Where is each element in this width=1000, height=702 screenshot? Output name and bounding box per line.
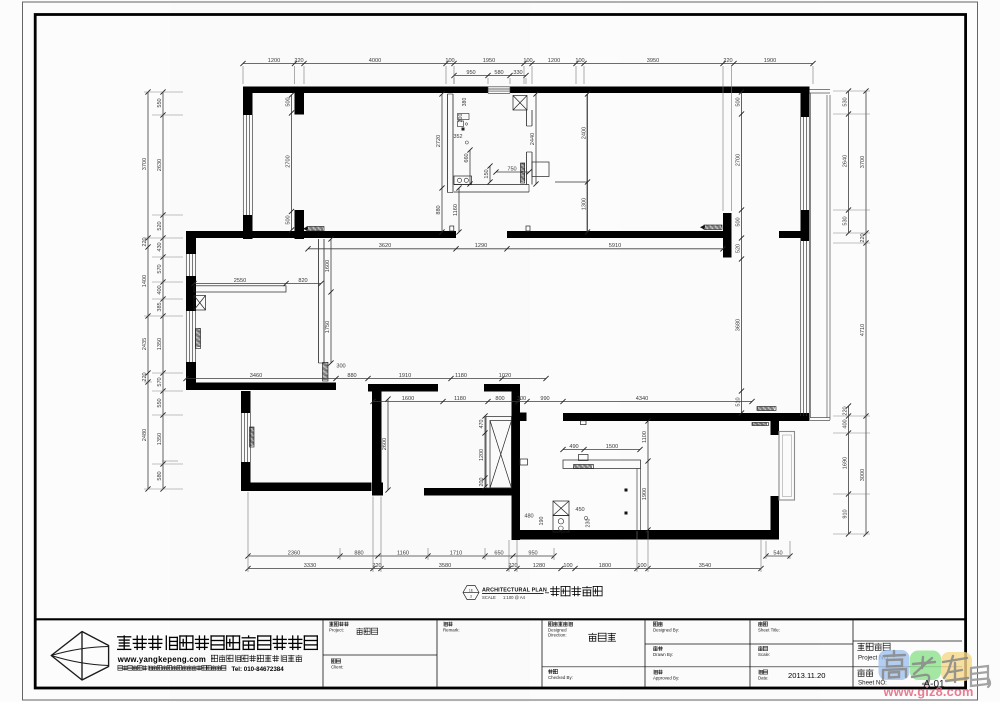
svg-text:880: 880 [354, 550, 363, 556]
svg-text:750: 750 [507, 166, 516, 172]
svg-text:Client:: Client: [331, 664, 343, 669]
svg-text:3700: 3700 [142, 158, 148, 170]
svg-text:550: 550 [157, 398, 163, 407]
svg-text:100: 100 [575, 58, 584, 64]
svg-text:2640: 2640 [843, 155, 849, 167]
svg-text:Designed By:: Designed By: [653, 627, 679, 632]
svg-text:2400: 2400 [582, 127, 588, 139]
svg-text:3330: 3330 [304, 563, 316, 569]
svg-text:800: 800 [495, 396, 504, 402]
svg-text:3540: 3540 [699, 563, 711, 569]
svg-text:3620: 3620 [379, 243, 391, 249]
svg-text:Checked By:: Checked By: [548, 675, 573, 680]
svg-text:510: 510 [736, 397, 742, 406]
svg-text:1200: 1200 [268, 58, 280, 64]
svg-text:520: 520 [736, 244, 742, 253]
svg-text:4000: 4000 [369, 58, 381, 64]
svg-text:480: 480 [524, 514, 533, 520]
svg-text:1160: 1160 [397, 550, 409, 556]
svg-text:352: 352 [454, 134, 463, 140]
svg-text:570: 570 [157, 377, 163, 386]
svg-text:4340: 4340 [636, 396, 648, 402]
svg-text:1600: 1600 [325, 260, 331, 272]
svg-text:550: 550 [157, 98, 163, 107]
svg-text:2480: 2480 [142, 429, 148, 441]
svg-text:1350: 1350 [157, 338, 163, 350]
svg-text:580: 580 [157, 471, 163, 480]
svg-text:380: 380 [462, 98, 468, 107]
svg-text:1290: 1290 [475, 243, 487, 249]
svg-text:300: 300 [517, 396, 526, 402]
svg-text:220: 220 [860, 233, 866, 242]
svg-text:470: 470 [479, 420, 485, 429]
svg-text:1910: 1910 [399, 373, 411, 379]
svg-text:1950: 1950 [483, 58, 495, 64]
svg-text:1180: 1180 [454, 396, 466, 402]
svg-text:Sheet Title:: Sheet Title: [758, 627, 780, 632]
svg-text:880: 880 [436, 205, 442, 214]
svg-text:1750: 1750 [325, 321, 331, 333]
svg-text:100: 100 [523, 58, 532, 64]
svg-text:220: 220 [142, 237, 148, 246]
svg-text:1500: 1500 [606, 444, 618, 450]
svg-text:190: 190 [539, 517, 545, 526]
svg-text:A-01: A-01 [924, 679, 946, 690]
svg-text:650: 650 [494, 550, 503, 556]
svg-text:220: 220 [723, 58, 732, 64]
svg-text:1710: 1710 [450, 550, 462, 556]
svg-text:ARCHITECTURAL PLAN: ARCHITECTURAL PLAN [482, 588, 547, 594]
svg-text:230: 230 [586, 519, 592, 528]
svg-text:220: 220 [843, 406, 849, 415]
svg-text:1:100 @ A4: 1:100 @ A4 [503, 595, 526, 600]
svg-text:3: 3 [470, 595, 472, 599]
svg-text:100: 100 [445, 58, 454, 64]
svg-text:Approved By:: Approved By: [653, 675, 679, 680]
svg-text:3580: 3580 [439, 563, 451, 569]
svg-text:1300: 1300 [582, 198, 588, 210]
svg-text:580: 580 [494, 70, 503, 76]
svg-text:220: 220 [508, 563, 517, 569]
svg-text:200: 200 [458, 114, 464, 123]
svg-text:Drawn By:: Drawn By: [653, 652, 673, 657]
svg-text:2720: 2720 [436, 135, 442, 147]
svg-text:2435: 2435 [142, 338, 148, 350]
svg-text:400: 400 [843, 419, 849, 428]
svg-text:910: 910 [843, 509, 849, 518]
svg-text:385: 385 [157, 302, 163, 311]
svg-text:3460: 3460 [250, 373, 262, 379]
svg-text:220: 220 [294, 58, 303, 64]
svg-text:1100: 1100 [642, 431, 648, 443]
svg-text:3000: 3000 [860, 469, 866, 481]
svg-text:450: 450 [575, 507, 584, 513]
svg-text:1690: 1690 [843, 457, 849, 469]
svg-text:500: 500 [286, 215, 292, 224]
svg-text:1800: 1800 [599, 563, 611, 569]
svg-text:950: 950 [466, 70, 475, 76]
svg-text:500: 500 [286, 97, 292, 106]
svg-text:500: 500 [736, 217, 742, 226]
svg-text:2700: 2700 [736, 154, 742, 166]
svg-text:3700: 3700 [860, 156, 866, 168]
svg-text:Direction:: Direction: [548, 632, 567, 637]
svg-text:330: 330 [513, 70, 522, 76]
svg-text:500: 500 [736, 97, 742, 106]
svg-text:1180: 1180 [455, 373, 467, 379]
svg-text:400: 400 [157, 285, 163, 294]
svg-text:2013.11.20: 2013.11.20 [788, 671, 825, 680]
svg-text:5910: 5910 [609, 243, 621, 249]
svg-text:530: 530 [843, 97, 849, 106]
svg-text:990: 990 [540, 396, 549, 402]
svg-text:Tel: 010-84672384: Tel: 010-84672384 [232, 666, 285, 673]
svg-text:540: 540 [773, 550, 782, 556]
svg-text:2630: 2630 [157, 159, 163, 171]
svg-text:1200: 1200 [479, 449, 485, 461]
svg-text:1160: 1160 [453, 204, 459, 216]
svg-text:570: 570 [157, 264, 163, 273]
svg-text:880: 880 [347, 373, 356, 379]
svg-text:1400: 1400 [142, 275, 148, 287]
svg-text:3950: 3950 [647, 58, 659, 64]
svg-text:2600: 2600 [382, 438, 388, 450]
svg-text:4710: 4710 [860, 324, 866, 336]
svg-text:3680: 3680 [736, 319, 742, 331]
svg-text:SCALE: SCALE [482, 595, 496, 600]
svg-text:950: 950 [528, 550, 537, 556]
svg-text:520: 520 [157, 221, 163, 230]
svg-text:430: 430 [157, 242, 163, 251]
svg-text:820: 820 [298, 278, 307, 284]
svg-text:2700: 2700 [286, 155, 292, 167]
svg-text:1900: 1900 [642, 488, 648, 500]
svg-text:www.yangkepeng.com: www.yangkepeng.com [117, 655, 206, 664]
svg-text:2440: 2440 [530, 133, 536, 145]
svg-text:150: 150 [484, 169, 490, 178]
svg-text:Project:: Project: [329, 627, 344, 632]
svg-text:Date:: Date: [758, 675, 769, 680]
svg-text:100: 100 [637, 563, 646, 569]
svg-text:1280: 1280 [533, 563, 545, 569]
svg-text:1600: 1600 [402, 396, 414, 402]
svg-text:300: 300 [336, 364, 345, 370]
svg-text:Scale:: Scale: [758, 652, 770, 657]
svg-text:Remark:: Remark: [443, 627, 460, 632]
svg-text:1350: 1350 [157, 433, 163, 445]
svg-text:1020: 1020 [499, 373, 511, 379]
svg-text:100: 100 [563, 563, 572, 569]
svg-text:1E: 1E [469, 588, 474, 592]
svg-text:1900: 1900 [764, 58, 776, 64]
svg-text:660: 660 [464, 153, 470, 162]
svg-text:220: 220 [372, 563, 381, 569]
svg-text:200: 200 [479, 478, 485, 487]
svg-text:490: 490 [569, 444, 578, 450]
svg-text:2360: 2360 [288, 550, 300, 556]
svg-text:2550: 2550 [234, 278, 246, 284]
svg-text:220: 220 [142, 372, 148, 381]
svg-text:1200: 1200 [548, 58, 560, 64]
svg-text:530: 530 [843, 216, 849, 225]
